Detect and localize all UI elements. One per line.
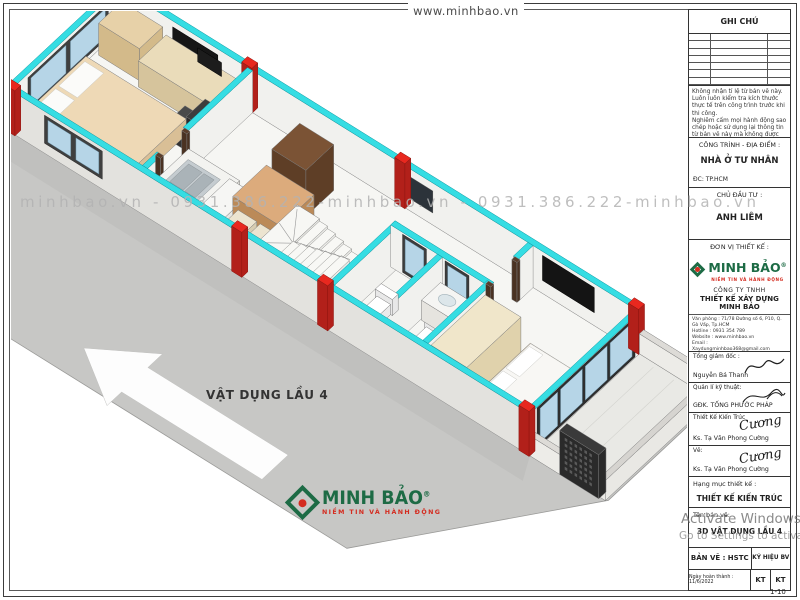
project-address: ĐC: TP.HCM [693, 176, 728, 183]
notes-grid-cell [711, 70, 768, 77]
notes-grid-cell [689, 56, 711, 63]
column-marker [232, 226, 242, 277]
title-block: GHI CHÚ Không nhận tỉ lệ từ bản vẽ này. … [688, 9, 791, 591]
brand-name: MINH BẢO® [322, 489, 432, 508]
revision-table: BẢN VẼ : HSTC KÝ HIỆU BV Ngày hoàn thành… [689, 548, 790, 590]
project-section: CÔNG TRÌNH - ĐỊA ĐIỂM : NHÀ Ở TƯ NHÂN ĐC… [689, 138, 790, 188]
signature-row-director: Tổng giám đốc : Nguyễn Bá Thanh [689, 352, 790, 383]
scale-note: 1-10 [770, 588, 786, 596]
door-frame [512, 259, 517, 302]
notes-grid-cell [711, 78, 768, 85]
column-marker [15, 85, 21, 135]
signature-name: Ks. Tạ Văn Phong Cường [693, 435, 769, 442]
kt-cell: KT [771, 570, 790, 591]
contact-line: Văn phòng : 71/78 Đường số 6, P10, Q. Gò… [692, 317, 787, 329]
column-marker [395, 157, 405, 208]
drawing-sheet: { "sheet": { "top_label": "www.minhbao.v… [0, 0, 800, 600]
drawing-code: BẢN VẼ : HSTC [689, 548, 752, 569]
notes-grid-cell [768, 78, 790, 85]
notes-grid-cell [689, 78, 711, 85]
notes-grid-cell [711, 56, 768, 63]
column-marker [5, 85, 15, 136]
brand-tagline: NIỀM TIN VÀ HÀNH ĐỘNG [708, 277, 786, 282]
notes-grid-cell [768, 70, 790, 77]
notes-grid-cell [711, 34, 768, 41]
brand-diamond-icon [285, 485, 320, 520]
column-marker [328, 281, 334, 331]
brand-diamond-icon [690, 262, 706, 278]
column-marker [405, 158, 411, 209]
signature-label: Vẽ: [693, 448, 703, 454]
floor-area-label: VẬT DỤNG LẦU 4 [206, 388, 328, 402]
notes-grid-cell [711, 63, 768, 70]
completion-date: Ngày hoàn thành : 11/6/2022 [689, 570, 751, 591]
notes-grid-cell [768, 49, 790, 56]
notes-grid-cell [689, 49, 711, 56]
balcony-grille [599, 448, 606, 499]
notes-grid-cell [711, 49, 768, 56]
project-name: NHÀ Ở TƯ NHÂN [689, 156, 790, 166]
notes-grid-cell [689, 34, 711, 41]
notes-grid-cell [711, 41, 768, 48]
column-marker [242, 227, 248, 278]
project-label: CÔNG TRÌNH - ĐỊA ĐIỂM : [689, 138, 790, 149]
column-marker [628, 303, 638, 354]
signature-row-drafter: Vẽ: Cương Ks. Tạ Văn Phong Cường [689, 446, 790, 477]
website-top-label: www.minhbao.vn [408, 2, 524, 20]
activate-windows-subtext: Go to Settings to activate Wi [679, 530, 800, 542]
notes-grid-cell [768, 56, 790, 63]
signature-row-technical: Quản lí kỹ thuật: GĐK. TỐNG PHƯỚC PHÁP [689, 383, 790, 413]
door-frame [517, 260, 520, 303]
company-type: CÔNG TY TNHH [689, 287, 790, 294]
registered-mark: ® [423, 490, 430, 499]
note-line: Luôn luôn kiểm tra kích thước thực tế tr… [692, 96, 787, 118]
signature-name: Nguyễn Bá Thanh [693, 372, 748, 379]
column-marker [519, 405, 529, 456]
notes-grid-cell [768, 63, 790, 70]
signature-row-architect: Thiết Kế Kiến Trúc Cương Ks. Tạ Văn Phon… [689, 413, 790, 446]
designer-label: ĐƠN VỊ THIẾT KẾ : [689, 240, 790, 251]
column-marker [318, 280, 328, 331]
company-contact: Văn phòng : 71/78 Đường số 6, P10, Q. Gò… [689, 315, 790, 352]
notes-grid [689, 34, 790, 86]
category-label: Hạng mục thiết kế : [689, 477, 790, 488]
contact-line: Email : Xaydungminhbao368@gmail.com [692, 341, 787, 352]
symbol-label: KÝ HIỆU BV [752, 548, 790, 569]
notes-header: GHI CHÚ [689, 10, 790, 34]
footer-brand-logo: MINH BẢO® NIỀM TIN VÀ HÀNH ĐỘNG [290, 489, 441, 516]
category-value: THIẾT KẾ KIẾN TRÚC [689, 494, 790, 503]
kt-cell: KT [751, 570, 771, 591]
brand-tagline: NIỀM TIN VÀ HÀNH ĐỘNG [322, 510, 441, 516]
notes-grid-cell [768, 41, 790, 48]
note-line: Nghiêm cấm mọi hành động sao chép hoặc s… [692, 118, 787, 138]
signature-label: Tổng giám đốc : [693, 354, 740, 360]
notes-grid-cell [768, 34, 790, 41]
signature-label: Quản lí kỹ thuật: [693, 385, 741, 391]
designer-section: ĐƠN VỊ THIẾT KẾ : MINH BẢO® NIỀM TIN VÀ … [689, 240, 790, 352]
signature-script: Cương [738, 446, 783, 467]
notes-grid-cell [689, 41, 711, 48]
client-name: ANH LIÊM [689, 213, 790, 223]
activate-windows-text: Activate Windows [681, 511, 800, 527]
brand-name: MINH BẢO® [708, 260, 786, 275]
client-label: CHỦ ĐẦU TƯ : [689, 188, 790, 199]
notes-grid-cell [689, 70, 711, 77]
client-section: CHỦ ĐẦU TƯ : ANH LIÊM [689, 188, 790, 240]
category-section: Hạng mục thiết kế : THIẾT KẾ KIẾN TRÚC [689, 477, 790, 508]
column-marker [529, 406, 535, 456]
notes-text: Không nhận tỉ lệ từ bản vẽ này. Luôn luô… [689, 86, 790, 138]
signature-name: GĐK. TỐNG PHƯỚC PHÁP [693, 402, 773, 409]
signature-name: Ks. Tạ Văn Phong Cường [693, 466, 769, 473]
company-name: THIẾT KẾ XÂY DỰNG MINH BẢO [689, 295, 790, 315]
notes-grid-cell [689, 63, 711, 70]
title-block-logo: MINH BẢO® NIỀM TIN VÀ HÀNH ĐỘNG [689, 257, 790, 282]
